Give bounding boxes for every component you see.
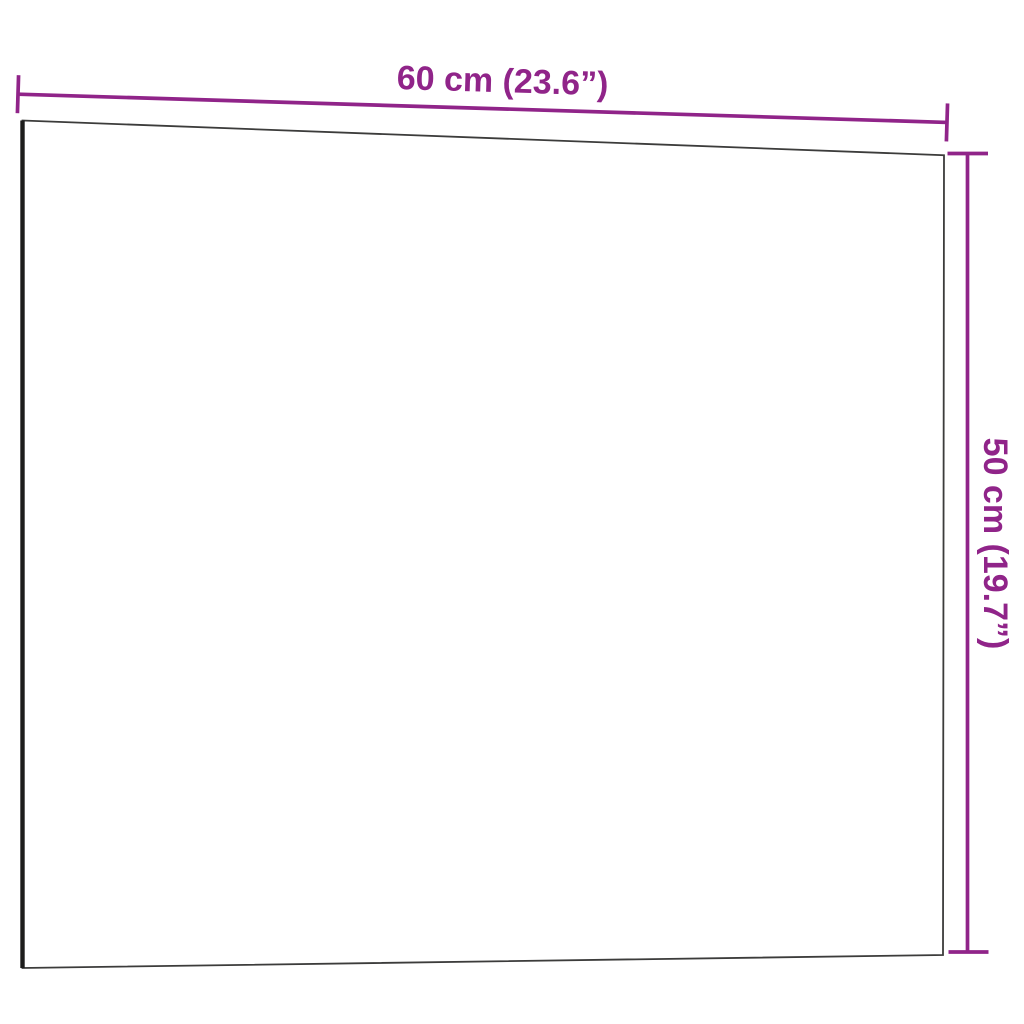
svg-text:60 cm (23.6”): 60 cm (23.6”) (396, 59, 609, 103)
svg-text:50 cm (19.7”): 50 cm (19.7”) (976, 438, 1014, 650)
